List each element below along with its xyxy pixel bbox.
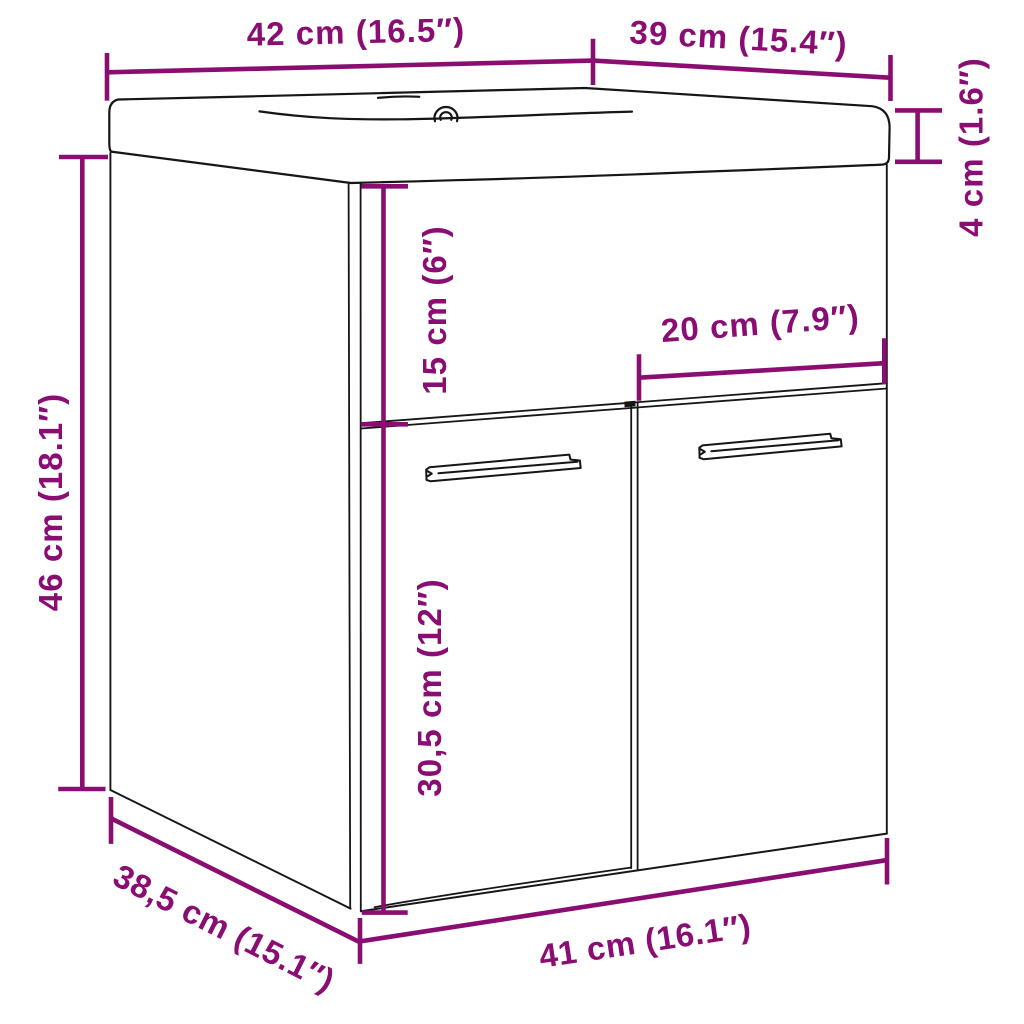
svg-text:38,5 cm (15.1″): 38,5 cm (15.1″) (108, 857, 341, 999)
svg-text:42 cm (16.5″): 42 cm (16.5″) (246, 11, 465, 53)
svg-text:4 cm (1.6″): 4 cm (1.6″) (953, 57, 990, 237)
svg-text:39 cm (15.4″): 39 cm (15.4″) (629, 13, 849, 62)
svg-text:15 cm (6″): 15 cm (6″) (416, 225, 453, 394)
svg-text:46 cm (18.1″): 46 cm (18.1″) (32, 393, 69, 611)
svg-text:20 cm (7.9″): 20 cm (7.9″) (660, 297, 861, 349)
svg-text:30,5 cm (12″): 30,5 cm (12″) (411, 578, 448, 796)
svg-text:41 cm (16.1″): 41 cm (16.1″) (537, 907, 754, 975)
